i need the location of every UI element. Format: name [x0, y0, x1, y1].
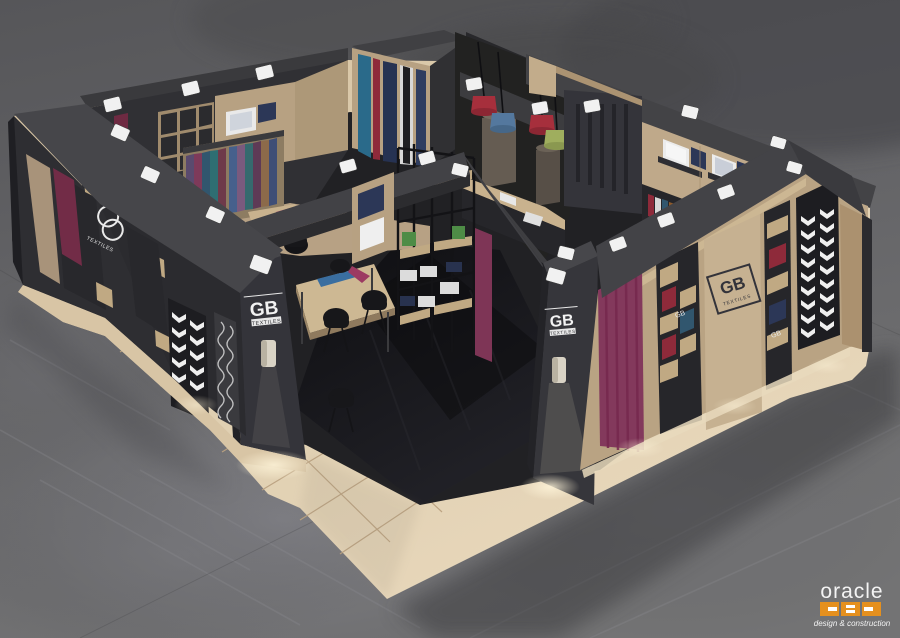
- svg-text:GB: GB: [549, 312, 574, 331]
- svg-text:design & construction: design & construction: [814, 619, 891, 628]
- svg-text:oracle: oracle: [820, 580, 883, 603]
